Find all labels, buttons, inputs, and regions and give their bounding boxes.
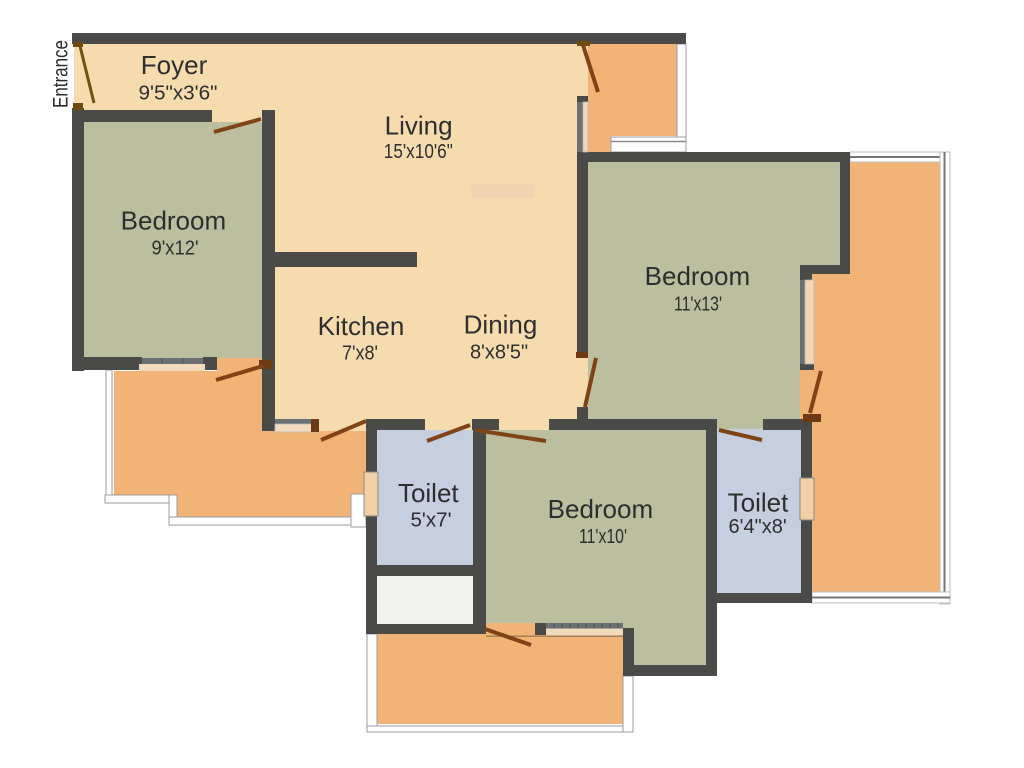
svg-text:Foyer: Foyer — [141, 50, 208, 80]
svg-text:9'5"x3'6": 9'5"x3'6" — [139, 83, 218, 105]
svg-text:Toilet: Toilet — [728, 487, 789, 517]
svg-text:Bedroom: Bedroom — [645, 261, 751, 291]
svg-text:Kitchen: Kitchen — [318, 311, 405, 341]
svg-text:Entrance: Entrance — [50, 40, 73, 108]
svg-text:Bedroom: Bedroom — [548, 494, 654, 524]
svg-text:6'4"x8': 6'4"x8' — [729, 516, 787, 538]
svg-text:8'x8'5": 8'x8'5" — [470, 341, 528, 363]
svg-text:5'x7': 5'x7' — [411, 510, 452, 532]
svg-text:Living: Living — [385, 110, 453, 140]
svg-text:11'x13': 11'x13' — [674, 294, 722, 316]
svg-text:11'x10': 11'x10' — [579, 526, 627, 548]
svg-text:Toilet: Toilet — [398, 478, 459, 508]
svg-text:Bedroom: Bedroom — [121, 206, 227, 236]
svg-text:15'x10'6": 15'x10'6" — [384, 141, 453, 163]
svg-text:9'x12': 9'x12' — [152, 238, 199, 260]
svg-text:Dining: Dining — [464, 310, 538, 340]
svg-text:7'x8': 7'x8' — [342, 343, 378, 365]
